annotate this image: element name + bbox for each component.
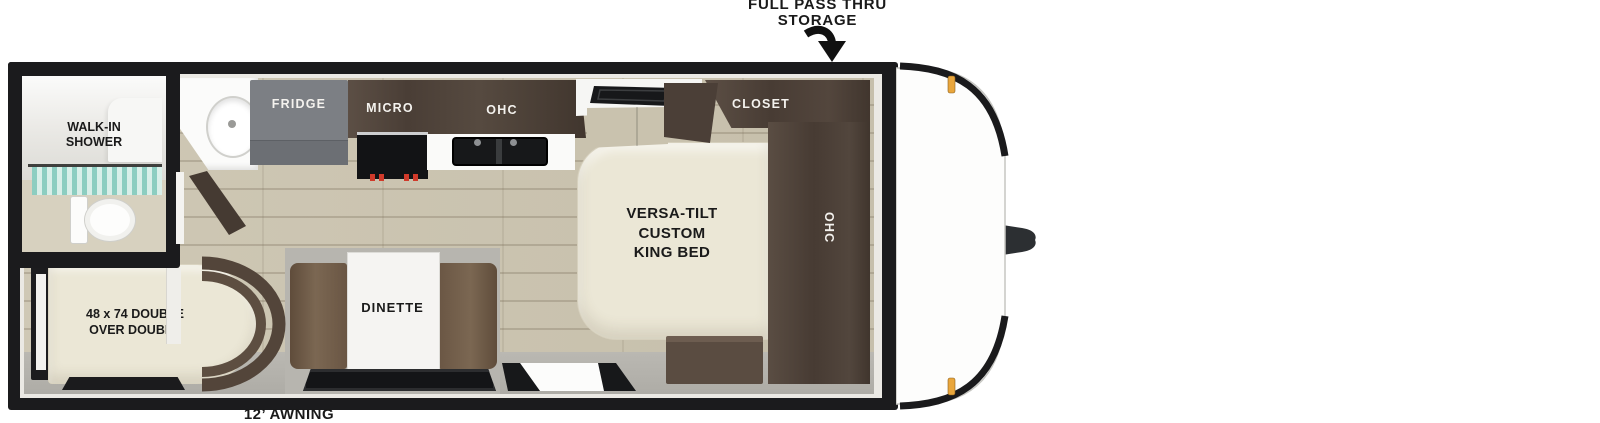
tongue-jack-hitch — [991, 224, 1036, 256]
front-cap-body — [896, 68, 1005, 404]
range-knob — [370, 174, 375, 181]
fridge-label: FRIDGE — [250, 97, 348, 111]
bed-foot-cabinet — [666, 336, 763, 384]
bunk-window-glass — [36, 274, 46, 370]
pass-thru-storage-callout: FULL PASS THRU STORAGE — [700, 0, 935, 28]
closet-label: CLOSET — [716, 97, 806, 111]
king-bed-label: VERSA-TILT CUSTOM KING BED — [582, 204, 762, 263]
shower-curtain — [32, 167, 162, 195]
awning-label: 12’ AWNING — [189, 406, 389, 423]
range-knob — [379, 174, 384, 181]
toilet — [84, 198, 136, 242]
rv-floorplan: FULL PASS THRU STORAGE FRIDGE MICRO OHC … — [0, 0, 1600, 423]
bunk-partition-wall — [166, 268, 181, 344]
bunk-label: 48 x 74 DOUBLE OVER DOUBLE — [60, 306, 210, 338]
front-cap-trim-bottom — [900, 316, 1005, 406]
bedroom-ohc-label: OHC — [822, 212, 836, 243]
bathroom: WALK-IN SHOWER — [8, 62, 180, 268]
bunk-floor-mat — [62, 377, 185, 390]
range-knob — [404, 174, 409, 181]
bedroom-wardrobe-ohc — [768, 122, 870, 384]
front-cap — [896, 60, 1046, 412]
dinette-bench-left — [290, 263, 347, 369]
sink-drain — [228, 120, 236, 128]
faucet-knob — [474, 139, 481, 146]
faucet-knob — [510, 139, 517, 146]
range-knob — [413, 174, 418, 181]
bathroom-interior: WALK-IN SHOWER — [22, 76, 166, 252]
cooktop-range — [357, 132, 428, 179]
dinette-label: DINETTE — [347, 300, 438, 315]
kitchen-ohc-label: OHC — [462, 103, 542, 117]
down-arrow-icon — [806, 30, 846, 62]
dinette-bench-right — [438, 263, 497, 369]
double-sink — [452, 137, 548, 166]
marker-light-top — [948, 76, 955, 93]
fridge-base — [250, 140, 348, 165]
front-cap-trim-top — [900, 66, 1005, 156]
microwave-label: MICRO — [350, 101, 430, 115]
shower-label: WALK-IN SHOWER — [24, 120, 164, 150]
marker-light-bottom — [948, 378, 955, 395]
dinette-floor-mat — [303, 369, 496, 391]
